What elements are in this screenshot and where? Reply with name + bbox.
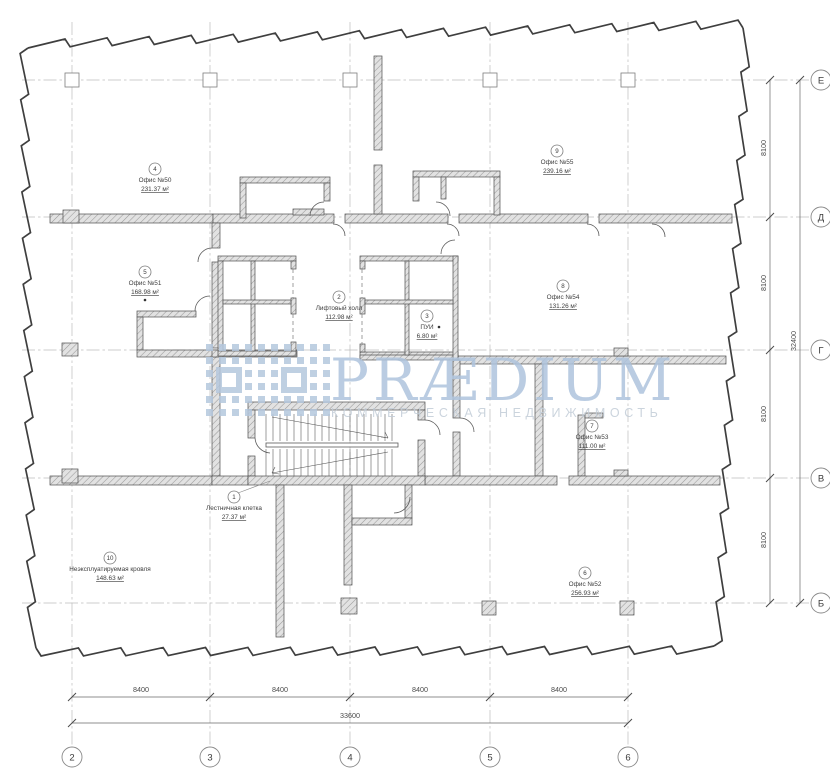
svg-text:4: 4: [153, 166, 157, 173]
svg-text:Е: Е: [818, 76, 824, 87]
svg-text:Лестничная клетка: Лестничная клетка: [206, 505, 262, 512]
svg-text:3: 3: [207, 753, 212, 764]
svg-text:256.93 м²: 256.93 м²: [571, 590, 599, 597]
svg-text:1: 1: [232, 494, 236, 501]
grid-bubble-4: 4: [340, 747, 360, 767]
svg-text:32400: 32400: [789, 331, 798, 351]
facade-bottom-edge: [36, 646, 714, 656]
svg-text:6: 6: [583, 570, 587, 577]
svg-text:239.16 м²: 239.16 м²: [543, 168, 571, 175]
svg-text:9: 9: [555, 148, 559, 155]
building-facade: [20, 20, 749, 656]
stair-treads: [266, 414, 392, 476]
grid-bubble-5: 5: [480, 747, 500, 767]
grid-bubble-3: 3: [200, 747, 220, 767]
svg-text:148.63 м²: 148.63 м²: [96, 575, 124, 582]
svg-text:131.26 м²: 131.26 м²: [549, 303, 577, 310]
svg-text:5: 5: [487, 753, 492, 764]
svg-text:8400: 8400: [133, 685, 149, 694]
watermark-tagline: КОММЕРЧЕСКАЯ НЕДВИЖИМОСТЬ: [331, 406, 662, 420]
floor-plan-page: 1 Лестничная клетка 27.37 м² 2 Лифтовый …: [0, 0, 830, 768]
facade-top-edge: [28, 20, 743, 48]
room-label-office-55: 9 Офис №55 239.16 м²: [541, 145, 574, 175]
grid-bubble-b: Б: [811, 593, 830, 613]
svg-text:В: В: [818, 474, 824, 485]
grid-bubble-d: Д: [811, 207, 830, 227]
svg-text:8100: 8100: [759, 532, 768, 548]
grid-bubble-6: 6: [618, 747, 638, 767]
svg-text:10: 10: [107, 555, 114, 562]
svg-text:Лифтовый холл: Лифтовый холл: [316, 304, 363, 312]
svg-text:27.37 м²: 27.37 м²: [222, 514, 246, 521]
svg-text:8400: 8400: [551, 685, 567, 694]
svg-text:Офис №53: Офис №53: [576, 434, 609, 441]
floor-plan-svg: 1 Лестничная клетка 27.37 м² 2 Лифтовый …: [0, 0, 830, 768]
svg-text:Офис №51: Офис №51: [129, 280, 162, 287]
svg-text:5: 5: [143, 269, 147, 276]
svg-text:Д: Д: [818, 213, 825, 224]
room-label-office-51: 5 Офис №51 168.98 м²: [129, 266, 162, 301]
stair-flights: [266, 414, 398, 476]
svg-text:33600: 33600: [340, 711, 360, 720]
grid-bubble-2: 2: [62, 747, 82, 767]
svg-text:8400: 8400: [412, 685, 428, 694]
svg-text:ПУИ: ПУИ: [420, 324, 434, 331]
svg-text:Б: Б: [818, 599, 824, 610]
svg-text:Офис №55: Офис №55: [541, 159, 574, 166]
facade-left-edge: [20, 48, 36, 648]
grid-bubble-v: В: [811, 468, 830, 488]
room-label-stairwell: 1 Лестничная клетка 27.37 м²: [206, 481, 270, 521]
svg-text:4: 4: [347, 753, 352, 764]
svg-text:Офис №52: Офис №52: [569, 581, 602, 588]
svg-text:112.98 м²: 112.98 м²: [325, 314, 352, 321]
room-label-office-50: 4 Офис №50 231.37 м²: [139, 163, 172, 193]
facade-right-edge: [714, 28, 749, 646]
grid-bubble-g: Г: [811, 340, 830, 360]
watermark-brand: PRÆDIUM: [330, 346, 676, 414]
svg-text:3: 3: [425, 313, 429, 320]
room-label-office-54: 8 Офис №54 131.26 м²: [547, 280, 580, 310]
room-label-office-52: 6 Офис №52 256.93 м²: [569, 567, 602, 597]
svg-text:2: 2: [337, 294, 341, 301]
room-label-pui: 3 ПУИ 6.80 м²: [417, 310, 441, 340]
svg-text:8400: 8400: [272, 685, 288, 694]
room-label-lift-hall: 2 Лифтовый холл 112.98 м²: [316, 291, 363, 321]
svg-text:Офис №54: Офис №54: [547, 294, 580, 301]
svg-text:7: 7: [590, 423, 594, 430]
svg-text:Офис №50: Офис №50: [139, 177, 172, 184]
svg-text:8100: 8100: [759, 275, 768, 291]
svg-text:8100: 8100: [759, 140, 768, 156]
grid-bubble-e: Е: [811, 70, 830, 90]
svg-text:6: 6: [625, 753, 630, 764]
room-label-roof: 10 Неэксплуатируемая кровля 148.63 м²: [69, 552, 151, 582]
svg-text:8: 8: [561, 283, 565, 290]
svg-text:231.37 м²: 231.37 м²: [141, 186, 169, 193]
svg-text:8100: 8100: [759, 406, 768, 422]
svg-text:6.80 м²: 6.80 м²: [417, 333, 438, 340]
dimension-labels: 8400 8400 8400 8400 33600 8100 8100 8100…: [133, 140, 798, 720]
svg-text:Неэксплуатируемая кровля: Неэксплуатируемая кровля: [69, 566, 151, 573]
svg-text:168.98 м²: 168.98 м²: [131, 289, 159, 296]
svg-text:2: 2: [69, 753, 74, 764]
svg-text:111.00 м²: 111.00 м²: [579, 443, 606, 450]
svg-text:Г: Г: [818, 346, 823, 357]
